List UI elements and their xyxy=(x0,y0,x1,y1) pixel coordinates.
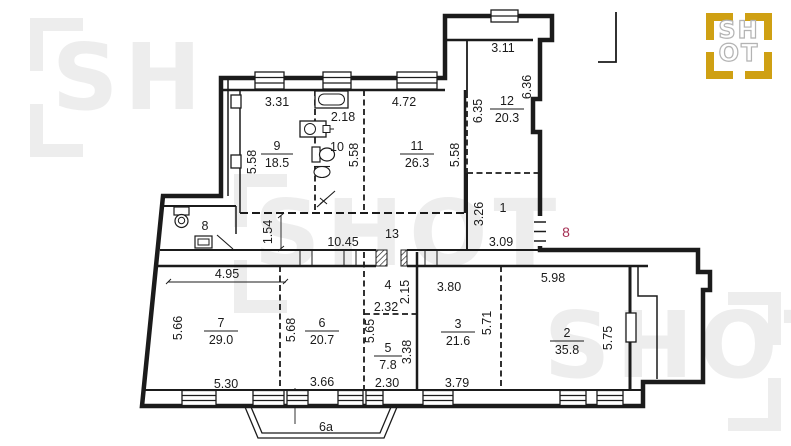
room-number: 11 xyxy=(411,139,424,153)
dim-label: 6.35 xyxy=(471,99,485,123)
dim-label: 3.66 xyxy=(310,375,334,389)
dim-label: 1.54 xyxy=(261,220,275,244)
room-area: 18.5 xyxy=(265,156,289,170)
dimension-labels-vertical: 5.58 5.58 5.58 6.35 6.36 3.26 1.54 5.66 … xyxy=(171,75,615,364)
sink xyxy=(314,167,330,178)
hatched-wall-segments xyxy=(376,250,407,266)
window xyxy=(366,391,383,406)
room-area: 20.7 xyxy=(310,333,334,347)
dim-label: 2.30 xyxy=(375,376,399,390)
window xyxy=(287,391,308,406)
floor-plan-page: { "colors": { "wall": "#1b1b1b", "apartm… xyxy=(0,0,791,446)
window xyxy=(323,72,351,89)
apartment-number: 8 xyxy=(562,224,570,240)
room-number: 2 xyxy=(564,326,571,340)
room-area: 29.0 xyxy=(209,333,233,347)
door-swing xyxy=(317,191,335,207)
dim-label: 2.15 xyxy=(398,280,412,304)
shot-logo: SH OT xyxy=(706,13,772,79)
room-number: 5 xyxy=(385,341,392,355)
dim-label: 4.95 xyxy=(215,267,239,281)
dim-label: 3.38 xyxy=(400,340,414,364)
room-number: 9 xyxy=(274,139,281,153)
room-area: 26.3 xyxy=(405,156,429,170)
dim-label: 3.11 xyxy=(491,41,514,55)
window xyxy=(253,391,284,406)
window xyxy=(597,391,623,406)
window xyxy=(397,72,437,89)
room-number: 1 xyxy=(500,201,507,215)
room-number: 4 xyxy=(385,278,392,292)
pilaster xyxy=(231,155,241,168)
room-number: 7 xyxy=(218,316,225,330)
door-swing xyxy=(217,235,233,249)
dim-label: 4.72 xyxy=(392,95,416,109)
logo-text: SH OT xyxy=(706,19,772,65)
window xyxy=(338,391,363,406)
room-area: 35.8 xyxy=(555,343,579,357)
sink xyxy=(195,236,212,248)
dim-label: 3.79 xyxy=(445,376,469,390)
pilaster xyxy=(231,95,241,108)
room-number: 10 xyxy=(330,140,344,154)
dim-label: 5.68 xyxy=(284,318,298,342)
wall-niche xyxy=(626,313,636,342)
dim-label: 10.45 xyxy=(327,235,358,249)
window xyxy=(491,10,518,22)
dim-label: 5.30 xyxy=(214,377,238,391)
floor-plan: 9 18.5 10 11 26.3 12 20.3 1 13 8 7 29.0 … xyxy=(0,0,791,446)
balcony-label: 6a xyxy=(319,420,333,434)
dim-label: 5.71 xyxy=(480,311,494,335)
room-area: 20.3 xyxy=(495,111,519,125)
dim-label: 5.58 xyxy=(347,143,361,167)
washbasin xyxy=(300,121,334,137)
dim-label: 2.32 xyxy=(374,300,398,314)
dim-label: 5.65 xyxy=(363,319,377,343)
window xyxy=(182,391,216,406)
dim-label: 2.18 xyxy=(331,110,355,124)
dim-label: 5.66 xyxy=(171,316,185,340)
logo-line2: OT xyxy=(706,42,772,65)
neighbor-wall xyxy=(598,12,616,62)
room-area: 21.6 xyxy=(446,334,470,348)
window xyxy=(255,72,284,89)
room-area: 7.8 xyxy=(379,358,396,372)
dim-label: 3.09 xyxy=(489,235,513,249)
window xyxy=(560,391,586,406)
entrance-door xyxy=(534,216,546,246)
room-number: 13 xyxy=(385,227,399,241)
room-number: 12 xyxy=(500,94,514,108)
dim-label: 3.26 xyxy=(472,202,486,226)
room-number: 6 xyxy=(319,316,326,330)
toilet xyxy=(174,207,189,228)
bathtub xyxy=(315,91,348,108)
dim-label: 5.58 xyxy=(245,150,259,174)
window xyxy=(423,391,453,406)
dim-label: 3.80 xyxy=(437,280,461,294)
dim-label: 5.98 xyxy=(541,271,565,285)
room-number: 3 xyxy=(455,317,462,331)
dim-label: 5.58 xyxy=(448,143,462,167)
dim-label: 3.31 xyxy=(265,95,289,109)
dim-label: 5.75 xyxy=(601,326,615,350)
room-number: 8 xyxy=(202,219,209,233)
dim-label: 6.36 xyxy=(520,75,534,99)
